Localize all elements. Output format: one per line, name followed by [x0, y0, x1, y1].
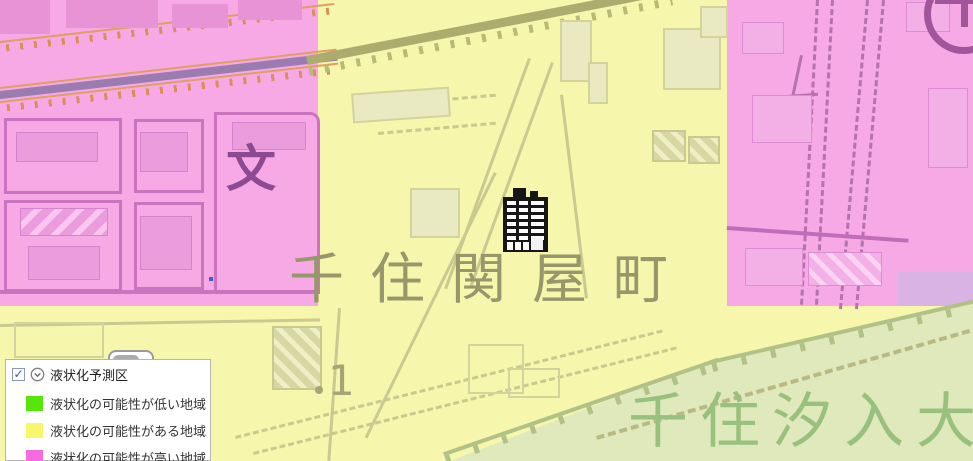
railway-main-yellow [306, 0, 673, 76]
building-footprint [351, 87, 451, 124]
legend-panel: ✓ 液状化予測区 液状化の可能性が低い地域 液状化の可能性がある地域 液状化の可… [5, 359, 211, 461]
building-footprint [140, 132, 188, 172]
window [519, 222, 528, 226]
building-footprint [928, 88, 968, 168]
post-office-symbol-bar [961, 2, 968, 27]
building-footprint [742, 22, 784, 54]
window [507, 222, 516, 226]
legend-swatch-high [26, 450, 43, 461]
legend-item-low: 液状化の可能性が低い地域 [26, 395, 210, 411]
building-footprint-hatched [808, 252, 882, 286]
window [519, 215, 528, 219]
building-marker-body [503, 197, 548, 252]
legend-layer-checkbox[interactable]: ✓ [12, 368, 25, 381]
poi-dot [209, 277, 213, 281]
building-footprint-hatched [20, 208, 108, 236]
building-footprint-hatched [652, 130, 686, 162]
building-footprint [172, 4, 228, 28]
district-label: 千住関屋町 [289, 252, 694, 307]
window [531, 229, 544, 233]
window [507, 236, 516, 240]
building-marker[interactable] [503, 188, 549, 252]
building-footprint [752, 95, 812, 143]
storefront [507, 242, 529, 250]
building-footprint [140, 216, 192, 270]
window [519, 201, 528, 205]
window [531, 201, 544, 205]
building-footprint [238, 0, 302, 20]
map-canvas[interactable]: 文 千住関屋町 千住汐入大 [0, 0, 973, 461]
block-number: 1 [328, 360, 355, 402]
road [0, 290, 318, 294]
window [507, 229, 516, 233]
legend-swatch-low [26, 396, 43, 411]
door [531, 238, 543, 250]
building-footprint [66, 0, 158, 28]
zone-lavender-patch [898, 272, 973, 306]
window [519, 208, 528, 212]
riverbank-label: 千住汐入大 [628, 392, 973, 452]
window [531, 215, 544, 219]
legend-label: 液状化の可能性が高い地域 [50, 448, 206, 461]
railway-ties [308, 0, 673, 76]
building-footprint [588, 62, 608, 104]
window [507, 215, 516, 219]
legend-item-high: 液状化の可能性が高い地域 [26, 449, 210, 461]
window [507, 201, 516, 205]
legend-item-possible: 液状化の可能性がある地域 [26, 422, 210, 438]
building-footprint [28, 246, 100, 280]
window [507, 208, 516, 212]
school-symbol: 文 [226, 144, 276, 194]
building-outline [508, 368, 560, 398]
chevron-down-icon[interactable] [30, 367, 45, 382]
legend-header: ✓ 液状化予測区 [6, 360, 210, 384]
legend-label: 液状化の可能性が低い地域 [50, 394, 206, 413]
building-footprint [16, 132, 98, 162]
block-number-dot [315, 386, 323, 394]
window [519, 236, 528, 240]
building-outline [14, 322, 104, 358]
road-dashed [378, 122, 496, 135]
window [519, 229, 528, 233]
legend-title: 液状化予測区 [50, 365, 128, 384]
legend-swatch-possible [26, 423, 43, 438]
window [531, 208, 544, 212]
building-footprint [745, 248, 803, 286]
window [531, 222, 544, 226]
building-footprint-hatched [688, 136, 720, 164]
building-footprint [0, 0, 50, 34]
building-footprint [410, 188, 460, 238]
building-footprint [700, 6, 728, 38]
legend-label: 液状化の可能性がある地域 [50, 421, 206, 440]
building-footprint-hatched [272, 326, 322, 390]
